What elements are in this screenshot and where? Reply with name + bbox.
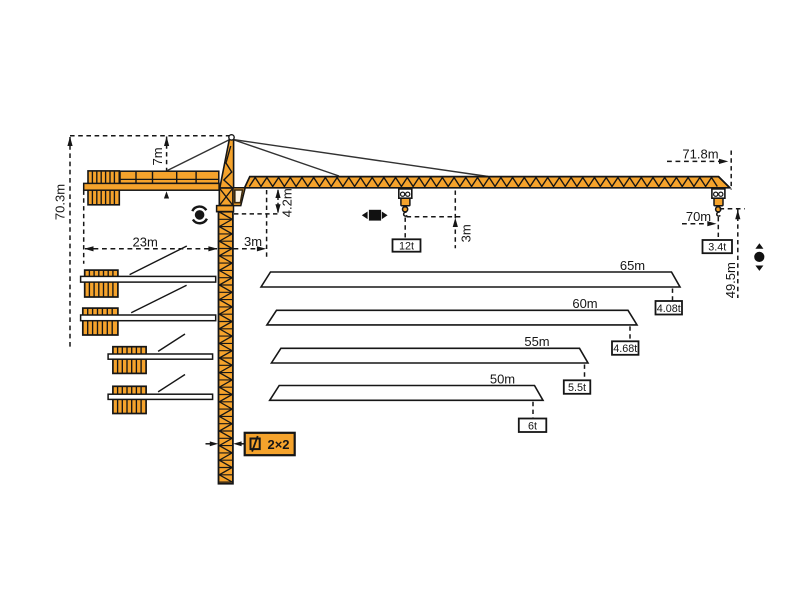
svg-text:6t: 6t (528, 420, 537, 432)
svg-text:60m: 60m (572, 296, 597, 311)
svg-text:3.4t: 3.4t (708, 242, 726, 254)
svg-text:23m: 23m (133, 234, 158, 249)
svg-text:55m: 55m (524, 334, 549, 349)
svg-text:3m: 3m (459, 224, 474, 242)
svg-text:50m: 50m (490, 371, 515, 386)
svg-text:2×2: 2×2 (267, 437, 289, 452)
svg-text:49.5m: 49.5m (723, 262, 738, 298)
svg-text:70.3m: 70.3m (53, 184, 68, 220)
svg-text:4.2m: 4.2m (280, 188, 295, 217)
svg-text:12t: 12t (399, 241, 414, 253)
svg-text:71.8m: 71.8m (682, 147, 718, 162)
svg-text:4.08t: 4.08t (657, 303, 681, 315)
svg-text:3m: 3m (244, 234, 262, 249)
svg-text:5.5t: 5.5t (568, 382, 586, 394)
svg-text:65m: 65m (620, 258, 645, 273)
svg-text:4.68t: 4.68t (613, 343, 637, 355)
svg-text:7m: 7m (150, 147, 165, 165)
